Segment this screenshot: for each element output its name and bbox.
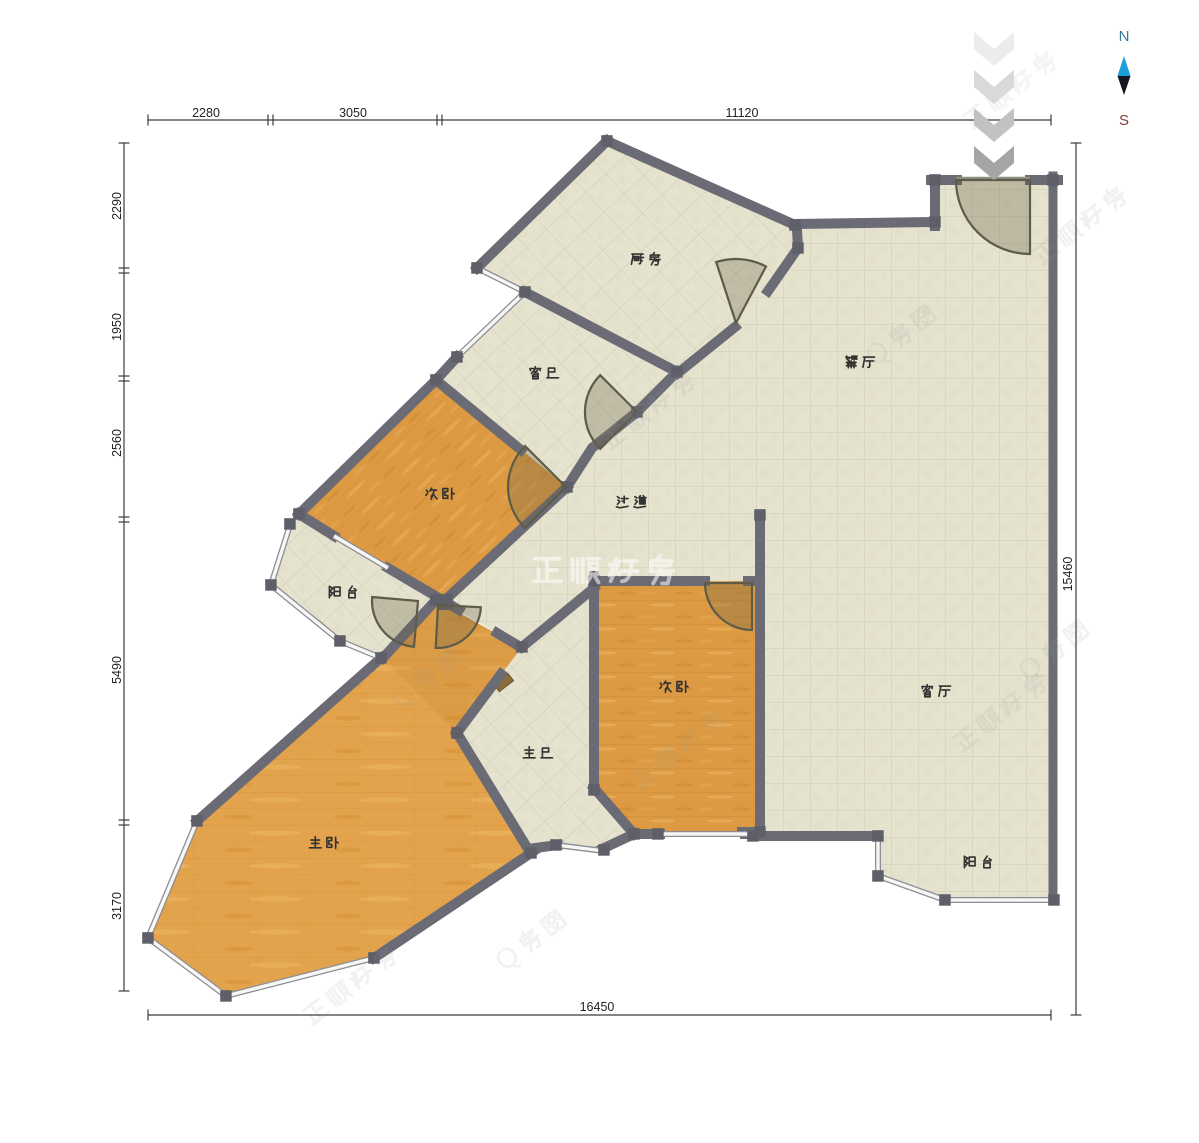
svg-text:3170: 3170	[110, 892, 124, 920]
svg-text:2280: 2280	[192, 106, 220, 120]
svg-text:15460: 15460	[1061, 557, 1075, 592]
svg-text:3050: 3050	[339, 106, 367, 120]
svg-text:5490: 5490	[110, 656, 124, 684]
svg-text:16450: 16450	[580, 1000, 615, 1014]
svg-text:N: N	[1119, 28, 1130, 45]
svg-text:S: S	[1119, 112, 1129, 129]
svg-text:1950: 1950	[110, 313, 124, 341]
svg-text:2560: 2560	[110, 429, 124, 457]
svg-text:11120: 11120	[726, 106, 759, 120]
svg-text:2290: 2290	[110, 192, 124, 220]
